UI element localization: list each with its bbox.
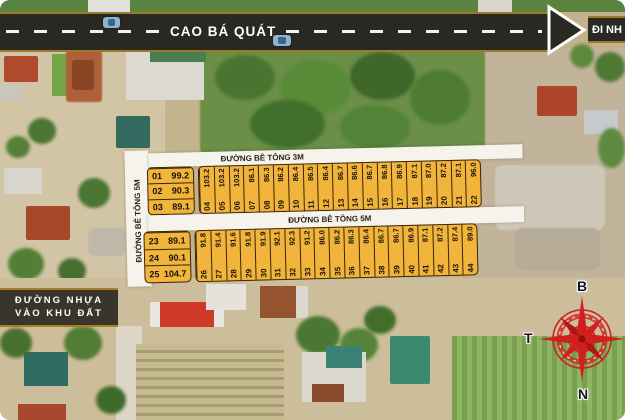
- plot-area: 87.0: [424, 163, 433, 178]
- plot-cell: 86.2 09: [273, 165, 289, 211]
- plot-area: 89.0: [465, 226, 474, 241]
- photo-tree: [250, 100, 325, 148]
- aerial-land-plot-map: CAO BÁ QUÁT ĐI NH ĐƯỜNG BÊ TÔNG 5M ĐƯỜNG…: [0, 0, 625, 420]
- plot-cell: 86.9 17: [391, 162, 407, 208]
- photo-tree: [598, 128, 625, 168]
- main-road: CAO BÁ QUÁT: [0, 12, 548, 52]
- plot-number: 41: [422, 265, 431, 274]
- plot-area: 104.7: [164, 269, 187, 280]
- plot-area: 103.2: [202, 169, 211, 188]
- photo-gray-roof-house: [0, 84, 22, 100]
- plot-strip-04-22: 103.2 04 103.2 05 103.2 06 86.1: [198, 159, 482, 214]
- plot-cell: 87.1 41: [417, 225, 433, 275]
- plot-number: 14: [351, 198, 360, 207]
- plot-number: 36: [348, 266, 357, 275]
- plot-area: 86.4: [291, 167, 300, 182]
- plot-cell: 86.3 08: [258, 165, 274, 211]
- photo-top-roof: [478, 0, 512, 12]
- plot-row-2: 23 89.1 24 90.1 25 104.7: [143, 223, 478, 283]
- plot-area: 86.3: [347, 229, 356, 244]
- plot-area: 86.9: [395, 164, 404, 179]
- plot-cell: 87.4 43: [447, 225, 463, 275]
- plot-cell: 86.2 35: [329, 228, 345, 278]
- plot-cell: 91.4 27: [210, 230, 226, 280]
- plot-cell: 92.1 31: [269, 229, 285, 279]
- plot-area: 103.2: [217, 168, 226, 187]
- plot-cell: 103.2 05: [214, 166, 230, 212]
- plot-number: 02: [152, 186, 162, 196]
- plot-cell: 87.1 21: [450, 161, 466, 207]
- plot-area: 91.8: [199, 233, 208, 248]
- plot-number: 01: [152, 171, 162, 181]
- plot-block-23-25: 23 89.1 24 90.1 25 104.7: [143, 230, 191, 283]
- plot-number: 13: [336, 199, 345, 208]
- plot-cell: 87.0 19: [421, 161, 437, 207]
- plot-number: 22: [469, 195, 478, 204]
- plot-area: 86.7: [376, 229, 385, 244]
- plot-layout: ĐƯỜNG BÊ TÔNG 5M ĐƯỜNG BÊ TÔNG 3M 01 99.…: [124, 141, 527, 287]
- plot-cell: 86.7 13: [332, 163, 348, 209]
- photo-teal-building: [24, 352, 68, 386]
- plot-area: 86.6: [350, 165, 359, 180]
- photo-red-roof-house: [4, 56, 38, 82]
- photo-tree: [595, 52, 625, 82]
- plot-area: 92.1: [273, 231, 282, 246]
- plot-area: 86.7: [391, 228, 400, 243]
- plot-area: 87.4: [450, 227, 459, 242]
- plot-area: 89.1: [172, 201, 190, 211]
- plot-area: 86.2: [276, 167, 285, 182]
- plot-cell: 02 90.3: [148, 183, 193, 199]
- plot-number: 42: [436, 264, 445, 273]
- photo-teal-roof-patch: [326, 346, 362, 368]
- plot-number: 23: [148, 236, 158, 246]
- plot-area: 86.1: [247, 168, 256, 183]
- plot-cell: 86.7 38: [373, 226, 389, 276]
- plot-number: 27: [215, 270, 224, 279]
- photo-tree: [64, 326, 102, 360]
- plot-cell: 87.2 42: [432, 225, 448, 275]
- plot-number: 19: [425, 196, 434, 205]
- plot-area: 86.7: [335, 166, 344, 181]
- car-icon: [103, 17, 120, 28]
- plot-area: 91.8: [243, 232, 252, 247]
- photo-crop-rows: [136, 344, 284, 420]
- plot-area: 87.2: [439, 163, 448, 178]
- plot-area: 99.2: [171, 170, 189, 180]
- plot-number: 39: [392, 265, 401, 274]
- plot-cell: 86.0 34: [314, 228, 330, 278]
- photo-rubble-patch: [515, 228, 600, 270]
- plot-cell: 92.3 32: [284, 229, 300, 279]
- photo-rust-patch: [312, 384, 344, 402]
- plot-cell: 03 89.1: [149, 198, 194, 214]
- photo-tree: [78, 178, 110, 208]
- plot-cell: 01 99.2: [148, 167, 193, 183]
- plot-number: 05: [218, 202, 227, 211]
- plot-cell: 24 90.1: [145, 248, 190, 266]
- plot-cell: 86.6 14: [347, 163, 363, 209]
- plot-number: 08: [262, 200, 271, 209]
- plot-number: 06: [233, 201, 242, 210]
- photo-white-roof-house: [4, 168, 42, 194]
- plot-area: 86.9: [406, 228, 415, 243]
- plot-cell: 91.8 26: [195, 231, 211, 281]
- plot-row-1: 01 99.2 02 90.3 03 89.1: [147, 159, 482, 215]
- photo-rust-roof-white-side: [296, 286, 308, 318]
- plot-number: 37: [362, 266, 371, 275]
- plot-number: 17: [395, 197, 404, 206]
- photo-tree: [410, 70, 470, 125]
- plot-number: 32: [288, 268, 297, 277]
- plot-cell: 86.7 15: [362, 163, 378, 209]
- plot-number: 30: [259, 269, 268, 278]
- plot-area: 87.1: [454, 163, 463, 178]
- photo-gray-patch: [88, 228, 126, 256]
- plot-cell: 23 89.1: [144, 231, 189, 249]
- plot-cell: 86.4 10: [288, 165, 304, 211]
- plot-number: 04: [203, 202, 212, 211]
- plot-area: 91.2: [302, 230, 311, 245]
- plot-area: 87.1: [421, 227, 430, 242]
- plot-number: 16: [381, 198, 390, 207]
- plot-number: 40: [407, 265, 416, 274]
- photo-red-strip-roof: [18, 404, 66, 420]
- plot-cell: 86.5 11: [302, 164, 318, 210]
- plot-area: 96.0: [469, 162, 478, 177]
- plot-area: 86.0: [317, 230, 326, 245]
- plot-cell: 86.4 37: [358, 227, 374, 277]
- plot-cell: 86.8 16: [376, 162, 392, 208]
- photo-tree: [8, 248, 44, 280]
- photo-tree: [0, 328, 32, 358]
- plot-number: 26: [200, 270, 209, 279]
- photo-tree: [6, 136, 30, 158]
- plot-area: 91.9: [258, 231, 267, 246]
- photo-brick-pile-shadow: [72, 60, 94, 90]
- plot-number: 15: [366, 198, 375, 207]
- compass-rose-icon: [537, 294, 625, 384]
- plot-number: 03: [153, 202, 163, 212]
- plot-number: 10: [292, 200, 301, 209]
- plot-area: 86.4: [321, 166, 330, 181]
- plot-number: 18: [410, 197, 419, 206]
- plot-cell: 87.2 20: [435, 161, 451, 207]
- road-5m-label: ĐƯỜNG BÊ TÔNG 5M: [288, 214, 371, 225]
- plot-strip-26-44: 91.8 26 91.4 27 91.6 28 91.8: [194, 223, 478, 282]
- photo-tree: [350, 52, 415, 100]
- plot-area: 86.4: [362, 229, 371, 244]
- photo-tree: [215, 55, 275, 100]
- plot-area: 90.3: [172, 186, 190, 196]
- plot-cell: 96.0 22: [465, 160, 481, 206]
- car-icon: [273, 35, 291, 46]
- plot-number: 20: [440, 196, 449, 205]
- plot-area: 87.2: [435, 227, 444, 242]
- plot-number: 33: [303, 267, 312, 276]
- direction-sign-label: ĐI NH: [592, 24, 622, 36]
- photo-top-roof: [88, 0, 130, 12]
- plot-number: 07: [247, 201, 256, 210]
- compass-rose: B T N: [520, 276, 625, 406]
- plot-area: 90.1: [168, 252, 186, 262]
- photo-red-roof-house: [537, 86, 577, 116]
- plot-number: 21: [455, 196, 464, 205]
- plot-area: 92.3: [288, 231, 297, 246]
- plot-number: 11: [307, 200, 316, 209]
- plot-number: 43: [451, 264, 460, 273]
- plot-area: 103.2: [232, 168, 241, 187]
- plot-number: 29: [244, 269, 253, 278]
- plot-number: 35: [333, 267, 342, 276]
- photo-teal-building: [390, 336, 430, 384]
- plot-number: 31: [274, 268, 283, 277]
- plot-cell: 86.9 40: [402, 226, 418, 276]
- plot-number: 44: [466, 263, 475, 272]
- plot-number: 09: [277, 200, 286, 209]
- compass-west-label: T: [524, 330, 533, 346]
- plot-cell: 86.7 39: [388, 226, 404, 276]
- plot-cell: 86.4 12: [317, 164, 333, 210]
- compass-north-label: B: [577, 278, 587, 294]
- plot-cell: 89.0 44: [462, 224, 478, 274]
- plot-area: 86.3: [261, 167, 270, 182]
- plot-area: 89.1: [168, 235, 186, 245]
- plot-cell: 91.8 29: [240, 230, 256, 280]
- plot-cell: 25 104.7: [145, 265, 190, 283]
- plot-cell: 91.6 28: [225, 230, 241, 280]
- photo-teal-roof-house: [116, 116, 150, 148]
- plot-cell: 91.9 30: [255, 229, 271, 279]
- road-3m-label: ĐƯỜNG BÊ TÔNG 3M: [221, 153, 304, 164]
- photo-tree: [96, 386, 126, 414]
- plot-area: 87.1: [409, 164, 418, 179]
- plot-cell: 103.2 06: [228, 166, 244, 212]
- plot-number: 24: [149, 253, 159, 263]
- plot-number: 34: [318, 267, 327, 276]
- photo-white-roof-cluster: [206, 284, 246, 310]
- car-windshield: [278, 37, 285, 45]
- plot-area: 86.8: [380, 164, 389, 179]
- plot-number: 12: [321, 199, 330, 208]
- access-road-label: ĐƯỜNG NHỰA VÀO KHU ĐẤT: [0, 288, 118, 327]
- access-road-line2: VÀO KHU ĐẤT: [0, 307, 118, 320]
- access-road-line1: ĐƯỜNG NHỰA: [0, 294, 118, 307]
- plot-area: 86.2: [332, 230, 341, 245]
- plot-cell: 103.2 04: [199, 167, 215, 213]
- plot-cell: 86.3 36: [343, 227, 359, 277]
- main-road-name: CAO BÁ QUÁT: [160, 22, 286, 41]
- photo-red-roof-house: [26, 206, 70, 240]
- compass-south-label: N: [578, 386, 588, 402]
- direction-sign: ĐI NH: [588, 16, 625, 43]
- plot-number: 25: [149, 269, 159, 279]
- plot-area: 86.5: [306, 166, 315, 181]
- car-windshield: [108, 19, 115, 27]
- plot-block-01-03: 01 99.2 02 90.3 03 89.1: [147, 166, 195, 215]
- plot-area: 91.6: [228, 232, 237, 247]
- plot-cell: 86.1 07: [243, 166, 259, 212]
- plot-number: 28: [229, 269, 238, 278]
- plot-number: 38: [377, 266, 386, 275]
- photo-tree: [364, 306, 396, 334]
- plot-cell: 87.1 18: [406, 162, 422, 208]
- plot-area: 86.7: [365, 165, 374, 180]
- direction-arrow-icon: [546, 3, 588, 57]
- plot-cell: 91.2 33: [299, 228, 315, 278]
- plot-area: 91.4: [214, 233, 223, 248]
- photo-tree: [28, 118, 56, 144]
